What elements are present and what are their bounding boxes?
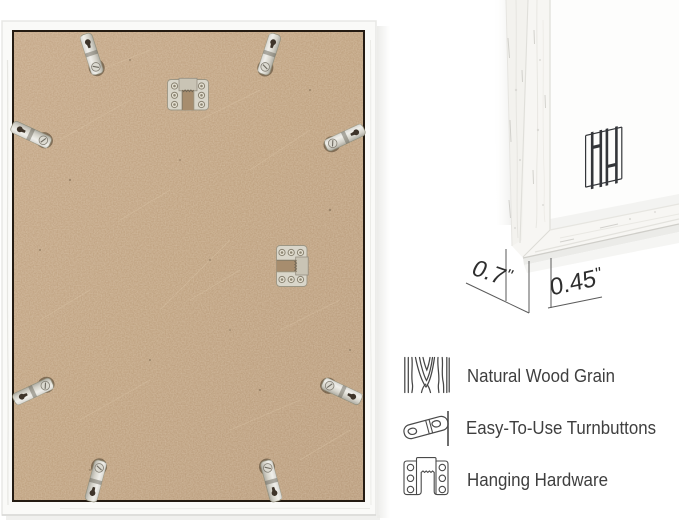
svg-text:Easy-To-Use Turnbuttons: Easy-To-Use Turnbuttons xyxy=(466,417,656,438)
svg-text:Natural Wood Grain: Natural Wood Grain xyxy=(467,365,615,386)
svg-text:Hanging Hardware: Hanging Hardware xyxy=(467,469,608,490)
